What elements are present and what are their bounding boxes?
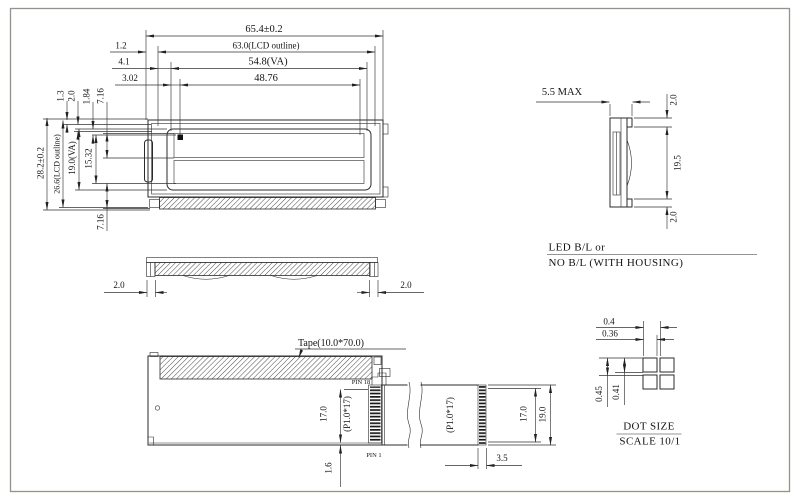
- dot-detail-scale: SCALE 10/1: [619, 436, 680, 448]
- dim-overall-width: 65.4±0.2: [245, 24, 282, 35]
- dim-lcd-outline-height: 26.6(LCD outline): [53, 134, 62, 194]
- dim-top-tab: 2.0: [669, 94, 679, 106]
- break-line-2: [419, 382, 422, 448]
- side-caption-line2: NO B/L (WITH HOUSING): [549, 257, 684, 269]
- housing-tab-top: [627, 118, 632, 127]
- dim-bottom-gap: 1.6: [324, 462, 334, 474]
- dim-offset-4-1: 4.1: [118, 57, 129, 67]
- dim-gap-1-84: 1.84: [82, 88, 92, 104]
- dim-gap-2-0: 2.0: [67, 90, 77, 102]
- display-row-2: [174, 161, 364, 184]
- dim-bottom-tab: 2.0: [669, 211, 679, 223]
- first-dot-marker: [178, 135, 184, 141]
- dot-1: [643, 358, 657, 372]
- right-tab-bottom: [383, 187, 388, 197]
- front-view: 65.4±0.2 63.0(LCD outline) 1.2 54.8(VA) …: [36, 24, 389, 231]
- dot-4: [660, 375, 674, 389]
- dot-2: [660, 358, 674, 372]
- pin18-label: PIN 18: [352, 379, 371, 386]
- pcb-hole: [155, 406, 159, 410]
- dim-gap-1-3: 1.3: [56, 90, 66, 102]
- pin-comb-stripes: [370, 387, 381, 442]
- dim-dot-width: 0.36: [602, 329, 618, 339]
- side-caption-line1: LED B/L or: [549, 242, 606, 254]
- profile-top-plate: [147, 258, 378, 263]
- side-view: 5.5 MAX 2.0 19.5 2.0 LED B/L or NO B/L (…: [536, 87, 757, 269]
- dim-cable-width: 19.0: [538, 406, 548, 422]
- dim-dot-pitch-y: 0.45: [594, 386, 604, 402]
- pin-tape-strip: [160, 198, 376, 210]
- pcb-right-step-2: [380, 369, 391, 377]
- va-window: [167, 129, 371, 190]
- strip-tab-right: [376, 200, 386, 208]
- dim-housing-height: 19.5: [673, 155, 683, 171]
- dot-detail-title: DOT SIZE: [623, 421, 675, 433]
- housing-bulge: [627, 140, 632, 186]
- dim-lcd-outline-width: 63.0(LCD outline): [233, 41, 300, 51]
- bottom-view: Tape(10.0*70.0) PIN 18 PIN 1 17.0 (P1.0*…: [148, 338, 556, 487]
- dim-tab-left: 2.0: [113, 280, 125, 290]
- dim-overall-height: 28.2±0.2: [36, 147, 46, 179]
- dim-active-width: 48.76: [254, 73, 278, 84]
- pcb-corner-notch: [148, 437, 154, 445]
- pin1-label: PIN 1: [366, 452, 381, 459]
- profile-arc-right: [271, 276, 317, 280]
- profile-arc-left: [183, 276, 229, 280]
- dot-3: [643, 375, 657, 389]
- display-row-1: [174, 134, 364, 158]
- dim-row-height-top: 7.16: [96, 88, 106, 104]
- housing-tab-bottom: [627, 199, 632, 207]
- dim-dot-height: 0.41: [611, 384, 621, 400]
- fpc-contact-stripes: [479, 386, 486, 444]
- dim-dot-pitch-x: 0.4: [603, 317, 615, 327]
- right-tab-top: [383, 124, 388, 134]
- connector-housing-step: [372, 373, 386, 385]
- dim-offset-3-02: 3.02: [122, 73, 138, 83]
- dim-pin-span-left: 17.0: [319, 406, 329, 422]
- side-plate: [610, 118, 627, 207]
- dim-pin-span-right: 17.0: [519, 406, 529, 422]
- drawing-canvas: 65.4±0.2 63.0(LCD outline) 1.2 54.8(VA) …: [0, 0, 800, 500]
- break-line-1: [407, 382, 410, 448]
- bezel-outline: [148, 120, 383, 197]
- profile-leg-right: [370, 263, 379, 277]
- dim-va-height: 19.0(VA): [67, 141, 77, 175]
- pcb-right-step-1: [374, 357, 381, 365]
- dim-connector-offset: 3.5: [496, 453, 508, 463]
- tape-hatch: [160, 357, 372, 380]
- dim-va-width: 54.8(VA): [248, 57, 288, 68]
- tape-label: Tape(10.0*70.0): [298, 338, 364, 349]
- dim-row-height-bottom: 7.16: [96, 214, 106, 230]
- dot-size-detail: 0.4 0.36 0.45 0.41 DOT SIZE SCALE 10/1: [594, 317, 682, 448]
- pin-pitch-left: (P1.0*17): [342, 396, 352, 432]
- dim-thickness-max: 5.5 MAX: [542, 87, 583, 98]
- lcd-module-technical-drawing: 65.4±0.2 63.0(LCD outline) 1.2 54.8(VA) …: [0, 0, 800, 500]
- dim-offset-1-2: 1.2: [115, 41, 126, 51]
- strip-tab-left: [150, 200, 160, 208]
- dim-active-height: 15.32: [84, 148, 94, 168]
- profile-view: 2.0 2.0: [104, 258, 424, 298]
- profile-body-hatch: [155, 263, 370, 276]
- pin-pitch-cable: (P1.0*17): [445, 397, 455, 433]
- dim-tab-right: 2.0: [400, 280, 412, 290]
